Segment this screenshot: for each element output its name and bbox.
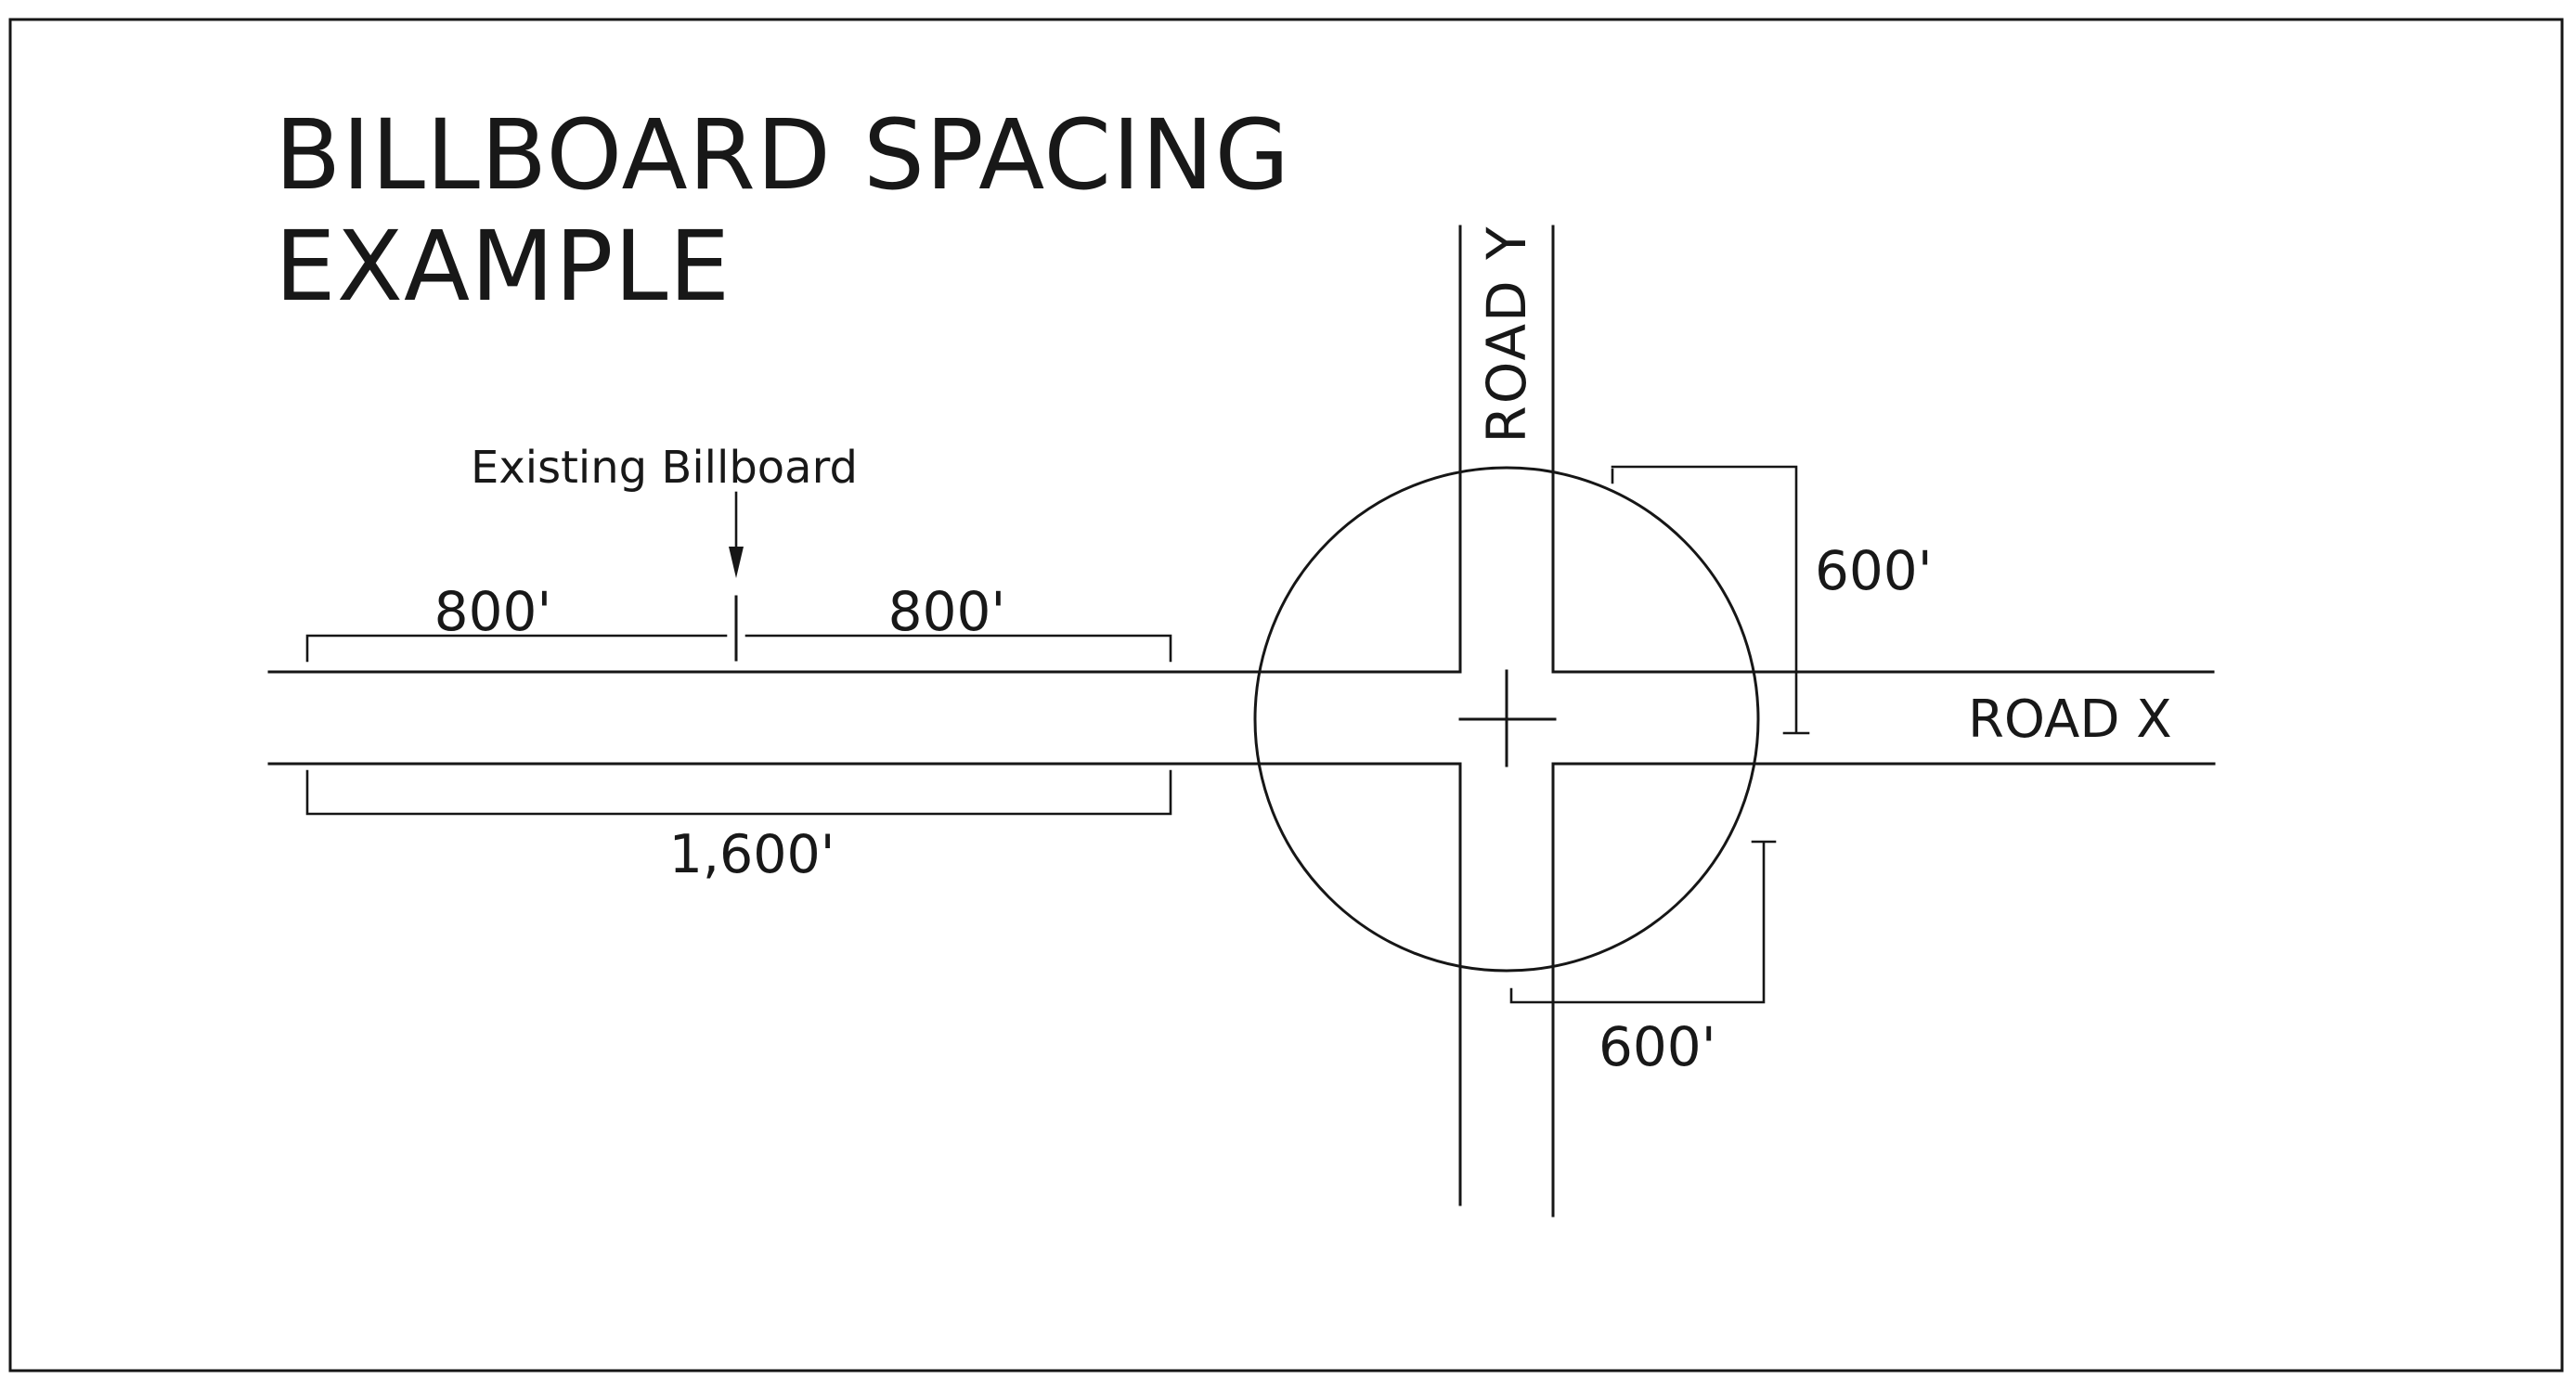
road-y-label: ROAD Y: [1475, 225, 1538, 443]
radius-bracket-lower: [1511, 842, 1775, 1002]
page-title-line1: BILLBOARD SPACING: [275, 98, 1290, 212]
dimension-line-1600: [307, 771, 1171, 814]
radius-label-lower: 600': [1599, 1015, 1716, 1078]
road-x-label: ROAD X: [1968, 690, 2172, 750]
billboard-spacing-diagram: BILLBOARD SPACING EXAMPLE Existing Billb…: [0, 0, 2576, 1392]
down-arrow-icon: [729, 493, 744, 578]
existing-billboard-label: Existing Billboard: [471, 442, 858, 494]
diagram-page: BILLBOARD SPACING EXAMPLE Existing Billb…: [0, 0, 2576, 1392]
page-title-line2: EXAMPLE: [275, 210, 731, 323]
intersection-center-cross: [1460, 671, 1555, 766]
dim-label-1600: 1,600': [669, 824, 835, 885]
dim-label-800-left: 800': [434, 580, 552, 643]
radius-label-upper: 600': [1815, 539, 1933, 602]
dim-label-800-right: 800': [888, 580, 1006, 643]
